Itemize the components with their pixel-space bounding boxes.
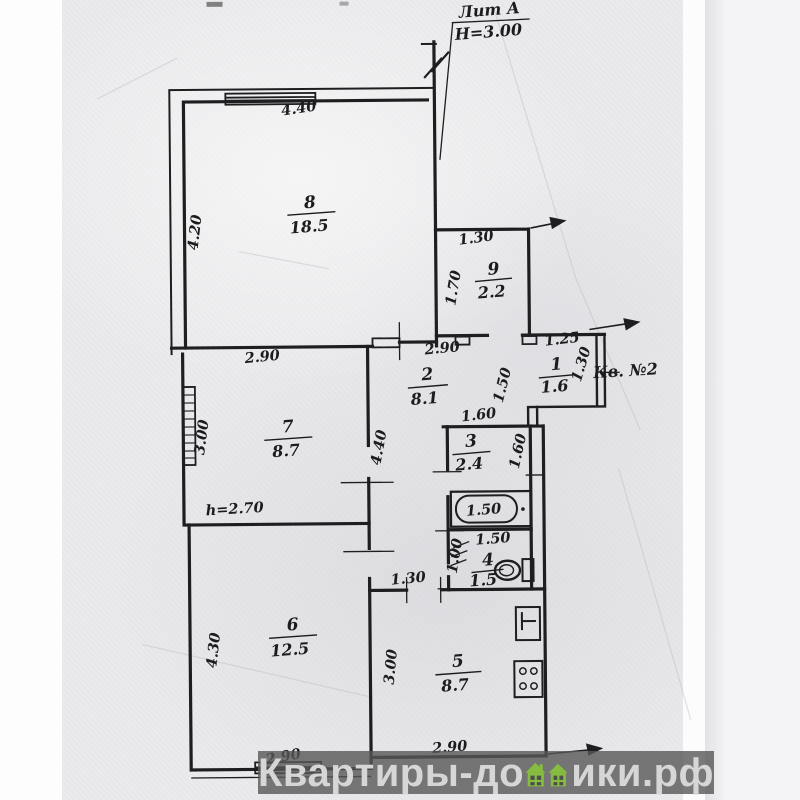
- dim-hall-depth: 4.40: [367, 429, 390, 467]
- kitchen-stove: [514, 661, 542, 697]
- dim-room9-depth: 1.70: [442, 269, 465, 307]
- room-7-area: 8.7: [270, 440, 300, 461]
- watermark-text-right: ики.рф: [571, 753, 714, 793]
- room-4-area: 1.5: [469, 569, 498, 590]
- room-4-number: 4: [481, 550, 494, 571]
- dim-bath-width: 1.60: [460, 405, 497, 426]
- scanned-floor-plan: Лит А Н=3.00 Кв. №2 h=2.70 8 18.5 9 2.2 …: [0, 0, 800, 800]
- fixtures: [451, 491, 543, 698]
- room-3-area: 2.4: [454, 454, 484, 475]
- room-6-area: 12.5: [270, 639, 310, 661]
- dim-tub-length: 1.50: [465, 500, 502, 520]
- building-height-label: Н=3.00: [453, 20, 523, 44]
- direction-arrows: [530, 217, 642, 755]
- dim-hall-opening: 1.50: [490, 366, 515, 404]
- room-3-number: 3: [464, 431, 478, 452]
- room-8-area: 18.5: [289, 215, 329, 237]
- room-1-area: 1.6: [540, 376, 569, 397]
- room-5-area: 8.7: [439, 675, 469, 696]
- room-1-number: 1: [550, 354, 563, 375]
- house-icon: [526, 762, 546, 786]
- floor-plan-drawing: Лит А Н=3.00 Кв. №2 h=2.70 8 18.5 9 2.2 …: [0, 0, 800, 800]
- room-6-number: 6: [286, 615, 300, 636]
- ceiling-height-label: h=2.70: [205, 499, 264, 520]
- watermark-text-left: Квартиры-до: [258, 753, 524, 793]
- wall-break-symbol: [424, 52, 449, 78]
- dim-room9-width: 1.30: [457, 227, 494, 248]
- building-letter-label: Лит А: [457, 0, 521, 22]
- house-icon: [549, 763, 568, 786]
- room-5-number: 5: [451, 651, 464, 672]
- dim-wc-width: 1.50: [475, 529, 512, 549]
- room-8-number: 8: [302, 193, 317, 214]
- dim-room7-depth: 3.00: [191, 419, 212, 456]
- dim-kitchen-depth: 3.00: [381, 648, 401, 685]
- dim-kitchen-door: 1.30: [390, 568, 427, 588]
- dimension-ticks: [185, 18, 624, 778]
- dim-bath-depth: 1.60: [506, 432, 530, 470]
- apartment-number-label: Кв. №2: [592, 359, 659, 382]
- room-9-area: 2.2: [476, 281, 506, 302]
- dim-room6-depth: 4.30: [203, 632, 224, 669]
- dim-room7-width: 2.90: [243, 347, 281, 367]
- room-7-number: 7: [281, 417, 295, 438]
- dim-room1-depth: 1.30: [568, 345, 594, 384]
- watermark-house-icons: [525, 750, 570, 798]
- watermark-bar: Квартиры-до ики.рф: [258, 751, 714, 794]
- dim-hall-width: 2.90: [423, 338, 461, 358]
- dim-room8-depth: 4.20: [185, 214, 206, 251]
- room-9-number: 9: [487, 259, 501, 280]
- kitchen-sink: [516, 607, 540, 640]
- dim-room1-width: 1.25: [543, 329, 580, 350]
- room-2-area: 8.1: [409, 388, 439, 409]
- scan-specks: [207, 1, 349, 7]
- plan-texts: Лит А Н=3.00 Кв. №2 h=2.70 8 18.5 9 2.2 …: [182, 0, 661, 769]
- room-2-number: 2: [420, 365, 435, 386]
